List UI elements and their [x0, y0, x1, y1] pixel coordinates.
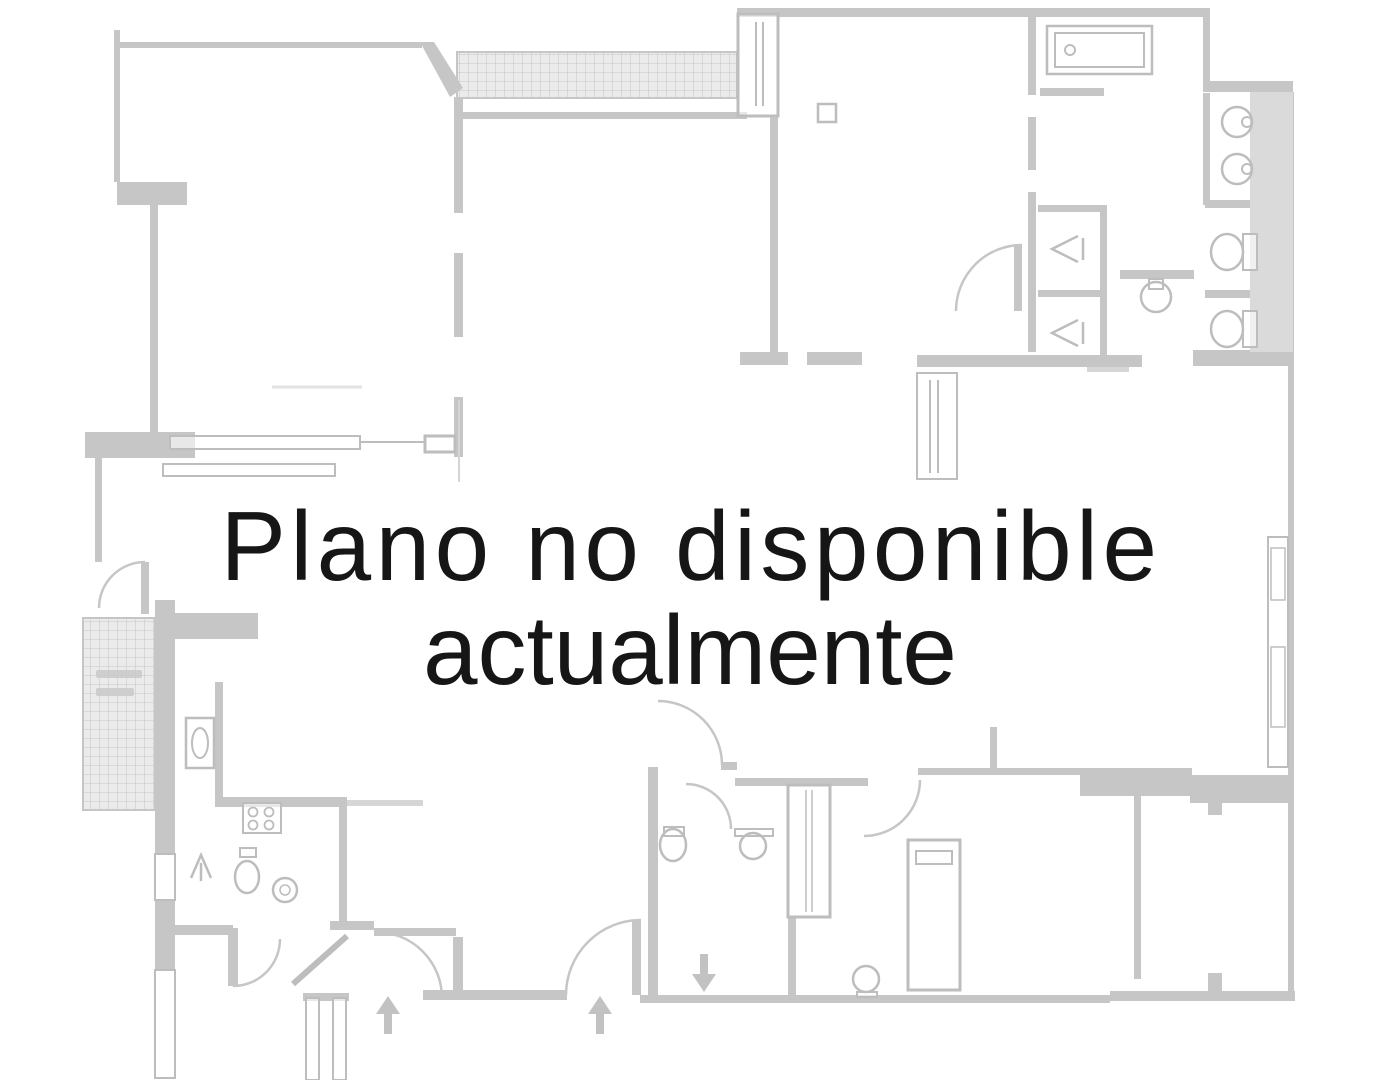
floorplan-image: Plano no disponible actualmente	[0, 0, 1382, 1080]
unavailable-text-line-1: Plano no disponible	[221, 491, 1162, 601]
unavailable-text-line-2: actualmente	[423, 595, 957, 705]
floor-plan-svg: Plano no disponible actualmente	[0, 0, 1382, 1080]
